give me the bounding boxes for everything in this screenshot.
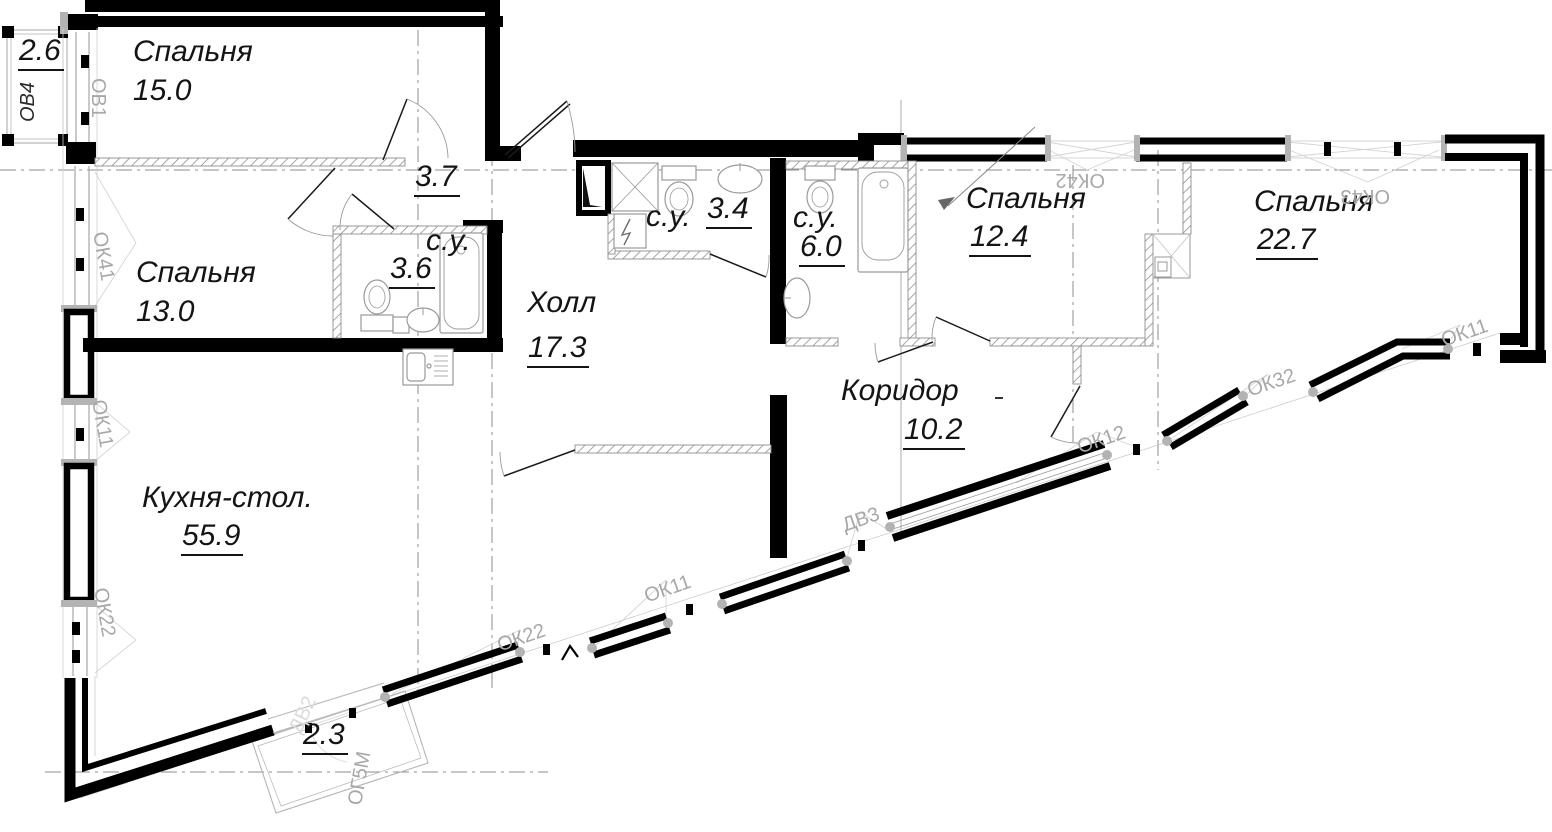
window-code-ок41: ОК41: [89, 230, 117, 282]
window-code-ов1: ОВ1: [88, 78, 108, 118]
room-area-hall: 17.3: [527, 333, 589, 368]
room-name-hall: Холл: [527, 288, 596, 318]
window-code-дв3: ДВ3: [840, 504, 882, 535]
label-layer: Спальня15.0Спальня13.0Кухня-стол.55.9Хол…: [0, 0, 1552, 832]
room-area-kitchen-dining: 55.9: [181, 521, 243, 556]
floor-plan: Спальня15.0Спальня13.0Кухня-стол.55.9Хол…: [0, 0, 1552, 832]
room-area-bedroom-4: 22.7: [1256, 225, 1318, 260]
room-area-bedroom-3: 12.4: [969, 222, 1031, 257]
room-name-bedroom-2: Спальня: [136, 258, 256, 288]
window-code-ок11: ОК11: [1439, 316, 1491, 351]
window-code-ок42: ОК42: [1056, 170, 1105, 190]
room-name-kitchen-dining: Кухня-стол.: [142, 483, 313, 513]
window-code-ок22: ОК22: [495, 620, 548, 655]
window-code-ог5м: ОГ5М: [345, 750, 374, 807]
room-name-bathroom-3: с.у.: [793, 203, 838, 233]
room-area-bathroom-3: 6.0: [799, 232, 845, 267]
room-name-corridor: Коридор: [841, 376, 959, 406]
window-code-ок11: ОК11: [642, 572, 694, 607]
room-area-bedroom-1: 15.0: [133, 76, 191, 106]
window-code-ок32: ОК32: [1245, 365, 1298, 400]
window-code-ок11: ОК11: [88, 398, 116, 449]
window-code-ок12: ОК12: [1075, 422, 1128, 457]
room-area-bathroom-2: 3.4: [706, 194, 752, 229]
window-code-ок22: ОК22: [90, 586, 118, 638]
room-area-balcony-1: 2.6: [18, 36, 64, 71]
room-name-bedroom-1: Спальня: [133, 37, 253, 67]
room-name-bathroom-2: с.у.: [646, 202, 691, 232]
room-area-bedroom-2: 13.0: [136, 297, 194, 327]
room-area-lobby: 3.7: [414, 162, 460, 197]
room-name-bathroom-1: с.у.: [426, 226, 471, 256]
room-area-bathroom-1: 3.6: [389, 254, 435, 289]
window-code-ов4: ОВ4: [18, 82, 38, 122]
room-area-corridor: 10.2: [903, 415, 965, 450]
window-code-ок43: ОК43: [1341, 186, 1390, 206]
